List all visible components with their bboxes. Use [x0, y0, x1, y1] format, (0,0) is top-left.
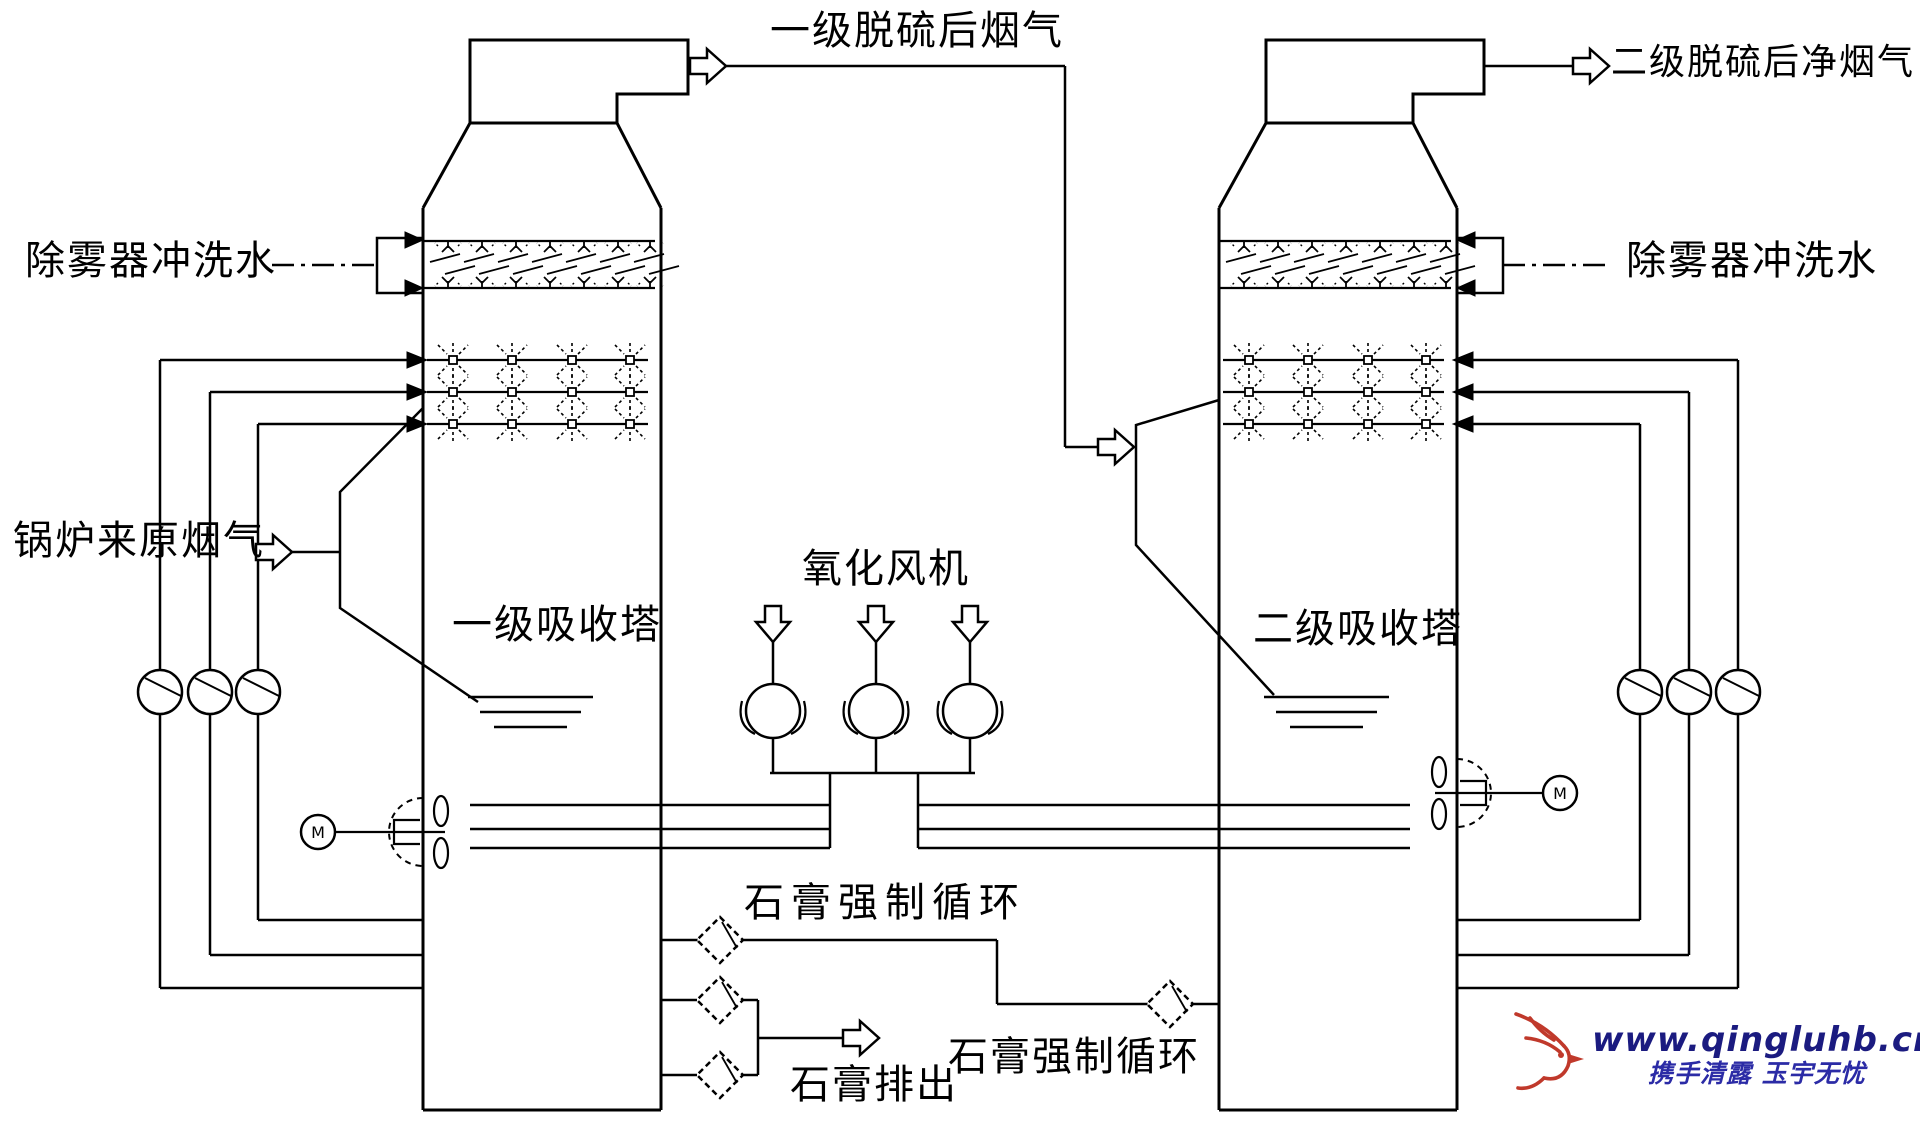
label-gypsum-circulation-2: 石膏强制循环 — [948, 1036, 1200, 1078]
demister-flush — [272, 238, 1612, 293]
label-tower2: 二级吸收塔 — [1253, 608, 1463, 650]
agitator-motor-label: M — [1553, 784, 1567, 803]
label-boiler-raw-gas: 锅炉来原烟气 — [13, 520, 265, 562]
label-tower1: 一级吸收塔 — [452, 604, 662, 646]
flow-arrowheads — [405, 232, 1475, 432]
oxidation-blowers — [741, 684, 1003, 738]
fgd-process-diagram-page: { "labels": { "stage1_outlet_gas": "一级脱硫… — [0, 0, 1920, 1132]
bird-eye — [1558, 1052, 1564, 1058]
label-gypsum-circulation-1: 石膏强制循环 — [740, 882, 1030, 924]
bird-logo-icon — [1508, 1008, 1594, 1100]
label-gypsum-discharge: 石膏排出 — [790, 1064, 958, 1106]
label-stage1-outlet-gas: 一级脱硫后烟气 — [770, 10, 1064, 52]
label-oxidation-fan: 氧化风机 — [802, 548, 970, 590]
label-demister-flush-right: 除雾器冲洗水 — [1626, 240, 1878, 282]
demister-section — [430, 241, 1475, 288]
label-stage2-outlet-gas: 二级脱硫后净烟气 — [1611, 44, 1915, 82]
agitator-motor-label: M — [311, 823, 325, 842]
watermark-sl: 携手清露 玉宇无忧 — [1648, 1054, 1866, 1090]
label-demister-flush-left: 除雾器冲洗水 — [25, 240, 277, 282]
bird-beak — [1568, 1054, 1584, 1064]
